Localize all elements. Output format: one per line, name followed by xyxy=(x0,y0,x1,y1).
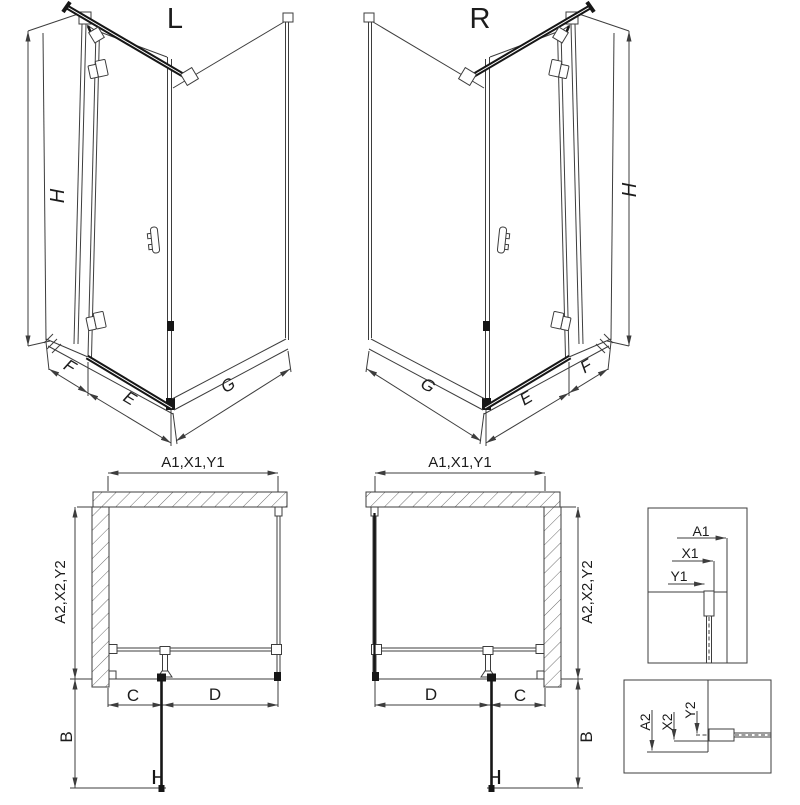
plan-right-b-label: B xyxy=(577,731,596,742)
technical-drawing-page: L R H F E G H F E G xyxy=(0,0,800,800)
detail-top-x1-label: X1 xyxy=(681,545,698,561)
plan-left-c-label: C xyxy=(127,686,139,705)
iso-right-f-label: F xyxy=(577,355,597,377)
hinge-top xyxy=(87,59,108,78)
iso-right-label: R xyxy=(470,3,491,35)
iso-left-height-label: H xyxy=(47,188,69,203)
iso-left-e-label: E xyxy=(120,387,140,409)
iso-view-right-geometry xyxy=(364,2,629,446)
wall-side-left-plan xyxy=(92,507,109,687)
dimension-h xyxy=(28,13,81,346)
profile-section xyxy=(704,591,714,616)
door-plan xyxy=(154,681,165,792)
detail-top-a1-label: A1 xyxy=(692,523,709,539)
wall-profile xyxy=(74,12,91,344)
plan-right-depth-label: A2,X2,Y2 xyxy=(579,560,596,623)
iso-view-left-geometry xyxy=(28,2,293,446)
panel-connector xyxy=(157,647,172,682)
plan-right-d-label: D xyxy=(425,685,437,704)
wall-side-right-plan xyxy=(544,507,561,687)
profile-section xyxy=(709,729,734,741)
plan-left-b-label: B xyxy=(57,731,76,742)
detail-box-bottom: A2 X2 Y2 xyxy=(624,680,771,773)
iso-right-e-label: E xyxy=(516,387,536,409)
plan-right-c-label: C xyxy=(514,686,526,705)
iso-left-f-label: F xyxy=(60,355,80,377)
door-handle xyxy=(147,227,160,254)
shower-enclosure-drawing: L R H F E G H F E G xyxy=(0,0,800,800)
plan-left-width-label: A1,X1,Y1 xyxy=(161,454,224,471)
dimension-g xyxy=(173,351,291,444)
hinge-bottom xyxy=(85,311,106,330)
dimension-b xyxy=(70,679,166,788)
iso-right-height-label: H xyxy=(619,182,641,197)
detail-box-top: A1 X1 Y1 xyxy=(648,508,747,663)
dimension-a2x2y2 xyxy=(75,507,92,679)
plan-left-depth-label: A2,X2,Y2 xyxy=(52,560,69,623)
plan-left-d-label: D xyxy=(209,685,221,704)
detail-bottom-a2-label: A2 xyxy=(637,713,653,730)
detail-top-y1-label: Y1 xyxy=(670,568,687,584)
wall-top-left-plan xyxy=(93,492,287,507)
wall-top-right-plan xyxy=(366,492,560,507)
fixed-panel-plan xyxy=(107,645,272,680)
detail-bottom-x2-label: X2 xyxy=(659,713,675,730)
corner-post xyxy=(166,57,175,410)
plan-right-width-label: A1,X1,Y1 xyxy=(428,454,491,471)
shower-tray-edges xyxy=(46,339,173,414)
iso-right-g-label: G xyxy=(417,374,438,397)
door-hinge-edge xyxy=(88,30,100,357)
iso-left-label: L xyxy=(167,3,183,35)
side-panel-plan xyxy=(272,507,283,681)
detail-bottom-y2-label: Y2 xyxy=(682,701,698,718)
